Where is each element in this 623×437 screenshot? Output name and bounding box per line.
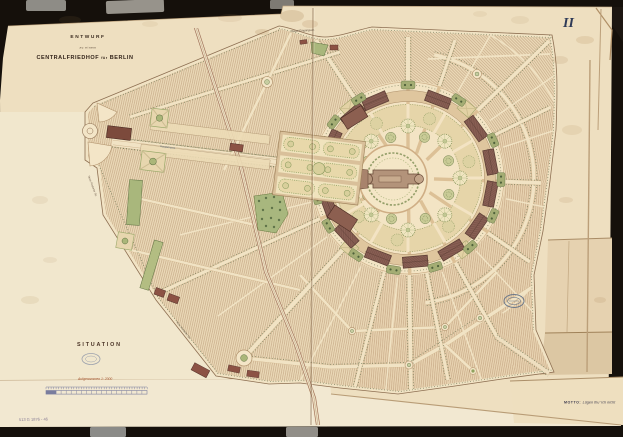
svg-text:zu einem: zu einem xyxy=(80,46,97,50)
svg-text:513 G 1876 - 46: 513 G 1876 - 46 xyxy=(19,416,49,422)
svg-text:MOTTO: Lügen thu’ ich nicht: MOTTO: Lügen thu’ ich nicht xyxy=(564,401,616,405)
svg-text:ENTWURF: ENTWURF xyxy=(70,34,105,40)
svg-text:Aufgenommen 1: 2000: Aufgenommen 1: 2000 xyxy=(77,377,112,381)
svg-text:II: II xyxy=(562,16,574,31)
svg-text:SITUATION: SITUATION xyxy=(77,342,122,348)
svg-text:CENTRALFRIEDHOF für BERLIN: CENTRALFRIEDHOF für BERLIN xyxy=(36,55,133,61)
